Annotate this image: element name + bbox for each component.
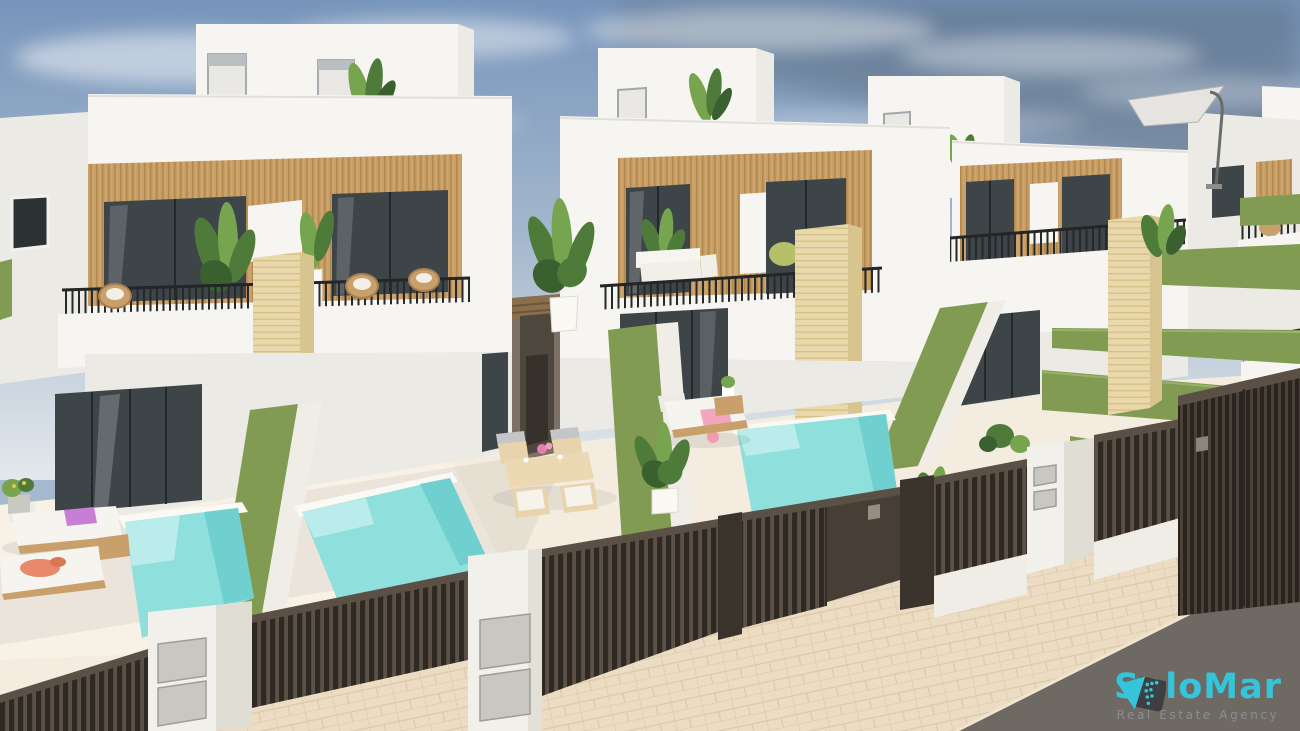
utility-pillar [148, 601, 252, 731]
gate-keypad [868, 504, 880, 520]
gate-keypad [1196, 436, 1208, 452]
side-table [98, 534, 130, 560]
glass-door [55, 384, 202, 514]
corner-fence [1178, 368, 1300, 616]
gate-post [900, 475, 934, 610]
utility-pillar [468, 548, 542, 731]
render-viewport: SoloMar Real Estate Agency [0, 0, 1300, 731]
flower-vase [537, 444, 547, 454]
scene-svg [0, 0, 1300, 731]
gate-post [718, 512, 742, 640]
agency-logo-icon [1114, 670, 1166, 722]
window [12, 196, 48, 250]
agency-logo: SoloMar Real Estate Agency [1114, 670, 1282, 721]
potted-plant [769, 242, 799, 266]
utility-pillar [1027, 438, 1094, 574]
balcony-partition [248, 200, 302, 262]
